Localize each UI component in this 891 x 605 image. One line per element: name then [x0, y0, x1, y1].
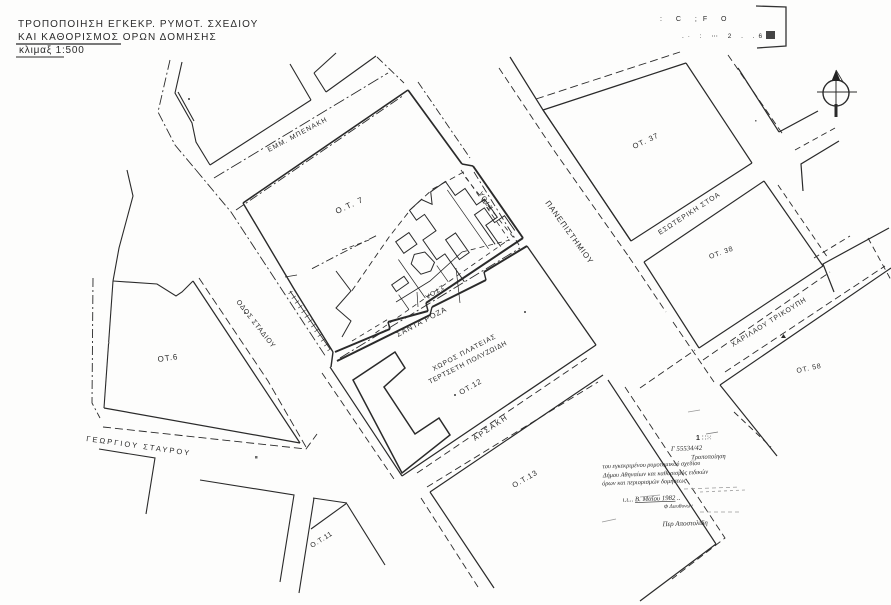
svg-text:ΚΑΙ ΚΑΘΟΡΙΣΜΟΣ ΟΡΩΝ ΔΟΜΗΣΗΣ: ΚΑΙ ΚΑΘΟΡΙΣΜΟΣ ΟΡΩΝ ΔΟΜΗΣΗΣ	[18, 32, 217, 43]
svg-text:Φ Διευθυνων: Φ Διευθυνων	[664, 503, 694, 510]
svg-text:ΤΡΟΠΟΠΟΙΗΣΗ ΕΓΚΕΚΡ. ΡΥΜΟΤ. ΣΧ: ΤΡΟΠΟΠΟΙΗΣΗ ΕΓΚΕΚΡ. ΡΥΜΟΤ. ΣΧΕΔΙΟΥ	[18, 19, 258, 30]
svg-text:Περ Αποστολίδη: Περ Αποστολίδη	[661, 519, 708, 529]
svg-text:1 ∷⁙: 1 ∷⁙	[696, 435, 712, 442]
svg-text:κλιμαξ 1:500: κλιμαξ 1:500	[19, 45, 85, 56]
svg-text:.· : ⋯ 2 . .6: .· : ⋯ 2 . .6	[682, 33, 766, 40]
svg-text:Γ 55534/42: Γ 55534/42	[670, 445, 703, 453]
svg-text:: C ;F O: : C ;F O	[660, 16, 733, 23]
